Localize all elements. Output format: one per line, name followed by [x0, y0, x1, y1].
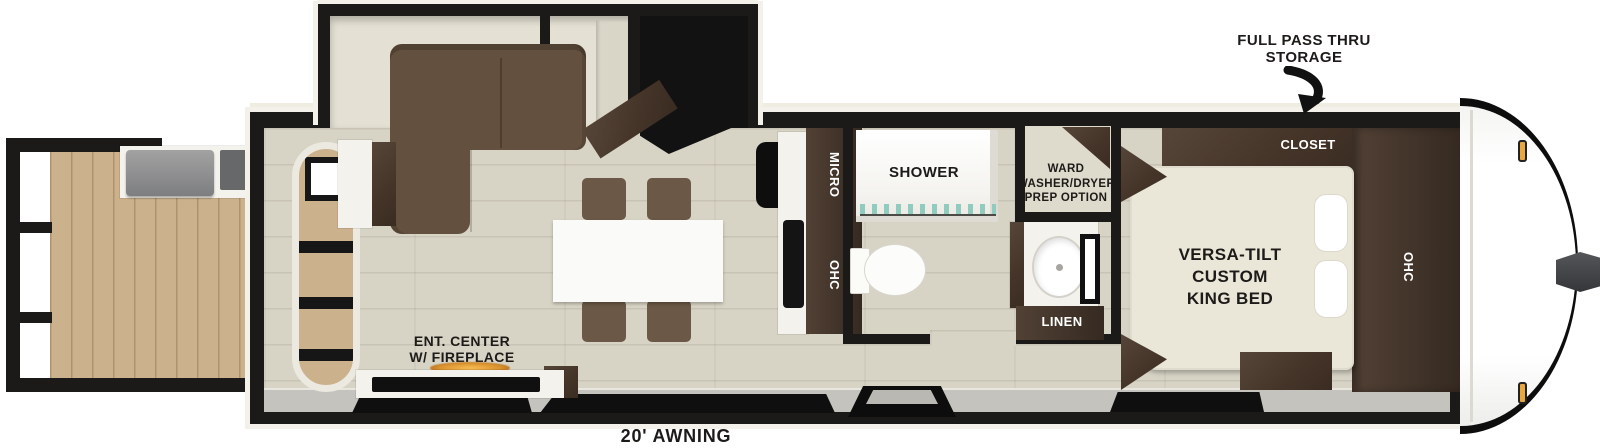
bedroom-ohc-label: OHC [1400, 252, 1415, 282]
linen-label: LINEN [1042, 315, 1083, 330]
kitchen-ohc-label: OHC [826, 260, 841, 290]
bathroom-window [1080, 234, 1100, 304]
pillow [1314, 260, 1348, 318]
outdoor-kitchen-unit [126, 150, 214, 196]
bathroom-door-gap [930, 330, 1016, 346]
sofa [390, 44, 586, 150]
kitchen-sink [783, 220, 804, 308]
cabinet [338, 140, 372, 228]
shower-label: SHOWER [889, 164, 959, 181]
vanity-side [1010, 222, 1024, 308]
door-bar [299, 349, 353, 361]
ent-center-label-line1: ENT. CENTER [409, 333, 514, 349]
sofa-seam [500, 58, 502, 148]
arrow-down-icon [1282, 66, 1330, 116]
dinette-chair [647, 300, 691, 342]
outdoor-appliance [220, 150, 252, 190]
micro-label: MICRO [826, 152, 841, 197]
deck-rail-left [6, 138, 20, 392]
dinette-table [553, 220, 723, 302]
storage-label: FULL PASS THRU STORAGE [1237, 32, 1370, 67]
sink-drain [1056, 264, 1063, 271]
bed-label-line3: KING BED [1179, 288, 1282, 310]
bed-label-line2: CUSTOM [1179, 266, 1282, 288]
tongue-hitch [1556, 252, 1600, 292]
marker-light-icon [1518, 140, 1527, 162]
window [1110, 392, 1264, 412]
entry-door-step [866, 390, 938, 404]
deck-rail-bar [20, 222, 52, 233]
awning-label: 20' AWNING [621, 426, 732, 447]
marker-light-icon [1518, 382, 1527, 404]
door-bar [299, 297, 353, 309]
sofa-chaise [390, 146, 470, 234]
floorplan: MICRO OHC ENT. CENTER W/ FIREPLACE SHOWE… [0, 0, 1600, 448]
door-bar [299, 241, 353, 253]
deck-rail-bar [20, 312, 52, 323]
storage-label-line2: STORAGE [1237, 49, 1370, 66]
cabinet [372, 142, 396, 226]
dinette-chair [582, 178, 626, 220]
deck-rail-bottom [6, 378, 252, 392]
ward-label-line3: PREP OPTION [1017, 191, 1115, 206]
dinette-chair [647, 178, 691, 220]
storage-label-line1: FULL PASS THRU [1237, 32, 1370, 49]
bed-label: VERSA-TILT CUSTOM KING BED [1179, 244, 1282, 310]
shower-glass [860, 204, 996, 216]
toilet-bowl [864, 244, 926, 296]
ward-label-line1: WARD [1017, 162, 1115, 177]
cap-seam [1470, 110, 1473, 422]
bed-label-line1: VERSA-TILT [1179, 244, 1282, 266]
tv [372, 377, 540, 392]
ent-center-label: ENT. CENTER W/ FIREPLACE [409, 333, 514, 365]
ward-label: WARD WASHER/DRYER PREP OPTION [1017, 162, 1115, 206]
window [540, 394, 835, 413]
nightstand [1240, 352, 1332, 390]
pillow [1314, 194, 1348, 252]
ward-label-line2: WASHER/DRYER [1017, 177, 1115, 192]
closet-label: CLOSET [1280, 138, 1335, 153]
dinette-chair [582, 300, 626, 342]
sofa-seam [470, 150, 472, 232]
